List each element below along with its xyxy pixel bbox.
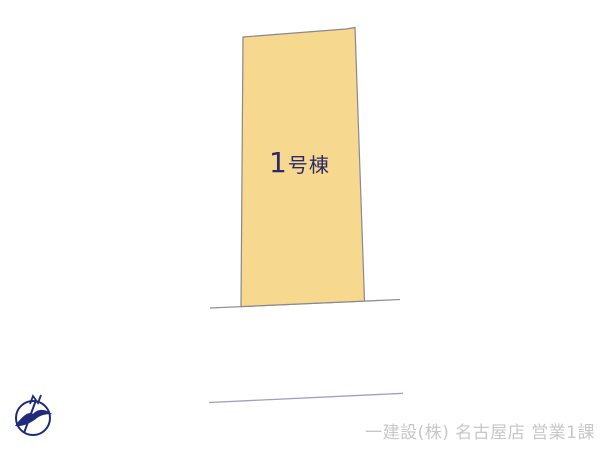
compass-icon (15, 395, 52, 435)
site-plan: 1号棟 一建設(株) 名古屋店 営業1課 (0, 0, 600, 450)
compass-wings-icon (15, 410, 52, 426)
lot-1-label: 1号棟 (269, 146, 359, 180)
lower-boundary-line (209, 393, 403, 402)
site-plan-drawing (0, 0, 600, 450)
company-watermark: 一建設(株) 名古屋店 営業1課 (365, 418, 595, 443)
